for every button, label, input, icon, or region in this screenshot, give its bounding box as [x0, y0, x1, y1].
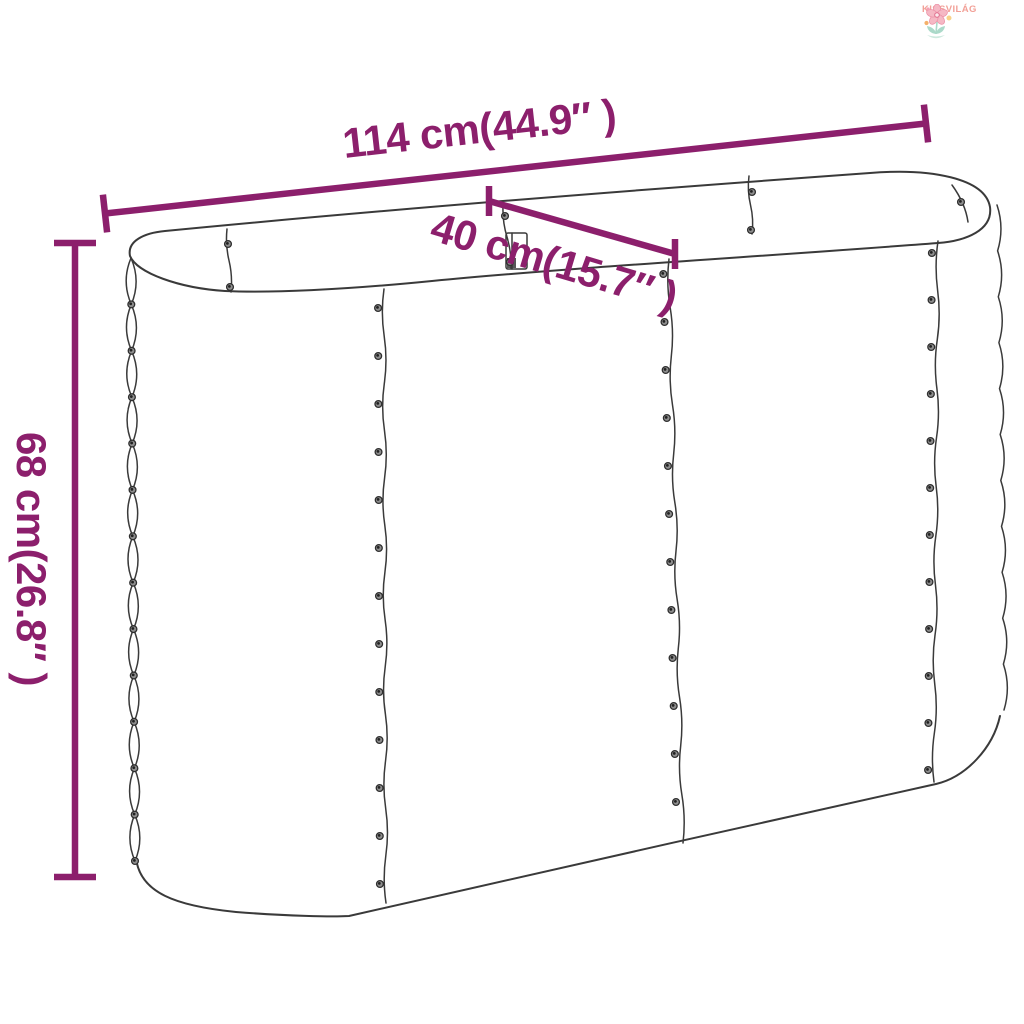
planter-body-face [130, 206, 1000, 916]
planter-line-drawing [0, 0, 1024, 1024]
height-dimension-label: 68 cm(26.8″ ) [10, 432, 52, 686]
planter-body [130, 206, 1000, 916]
brand-logo: KISSVILÁG [922, 4, 977, 15]
product-dimension-image: 114 cm(44.9″ ) 40 cm(15.7″ ) 68 cm(26.8″… [0, 0, 1024, 1024]
height-dimension-line [54, 243, 96, 877]
flower-leaf-base [927, 35, 945, 38]
flower-leaf-left [927, 26, 936, 34]
width-tick-left [103, 195, 107, 233]
logo-dot-orange [924, 21, 928, 25]
flower-icon [922, 4, 954, 42]
flower-leaf-right [936, 26, 945, 34]
logo-dot-pink [926, 7, 929, 10]
logo-dot-yellow [947, 16, 952, 21]
width-tick-right [924, 105, 928, 143]
